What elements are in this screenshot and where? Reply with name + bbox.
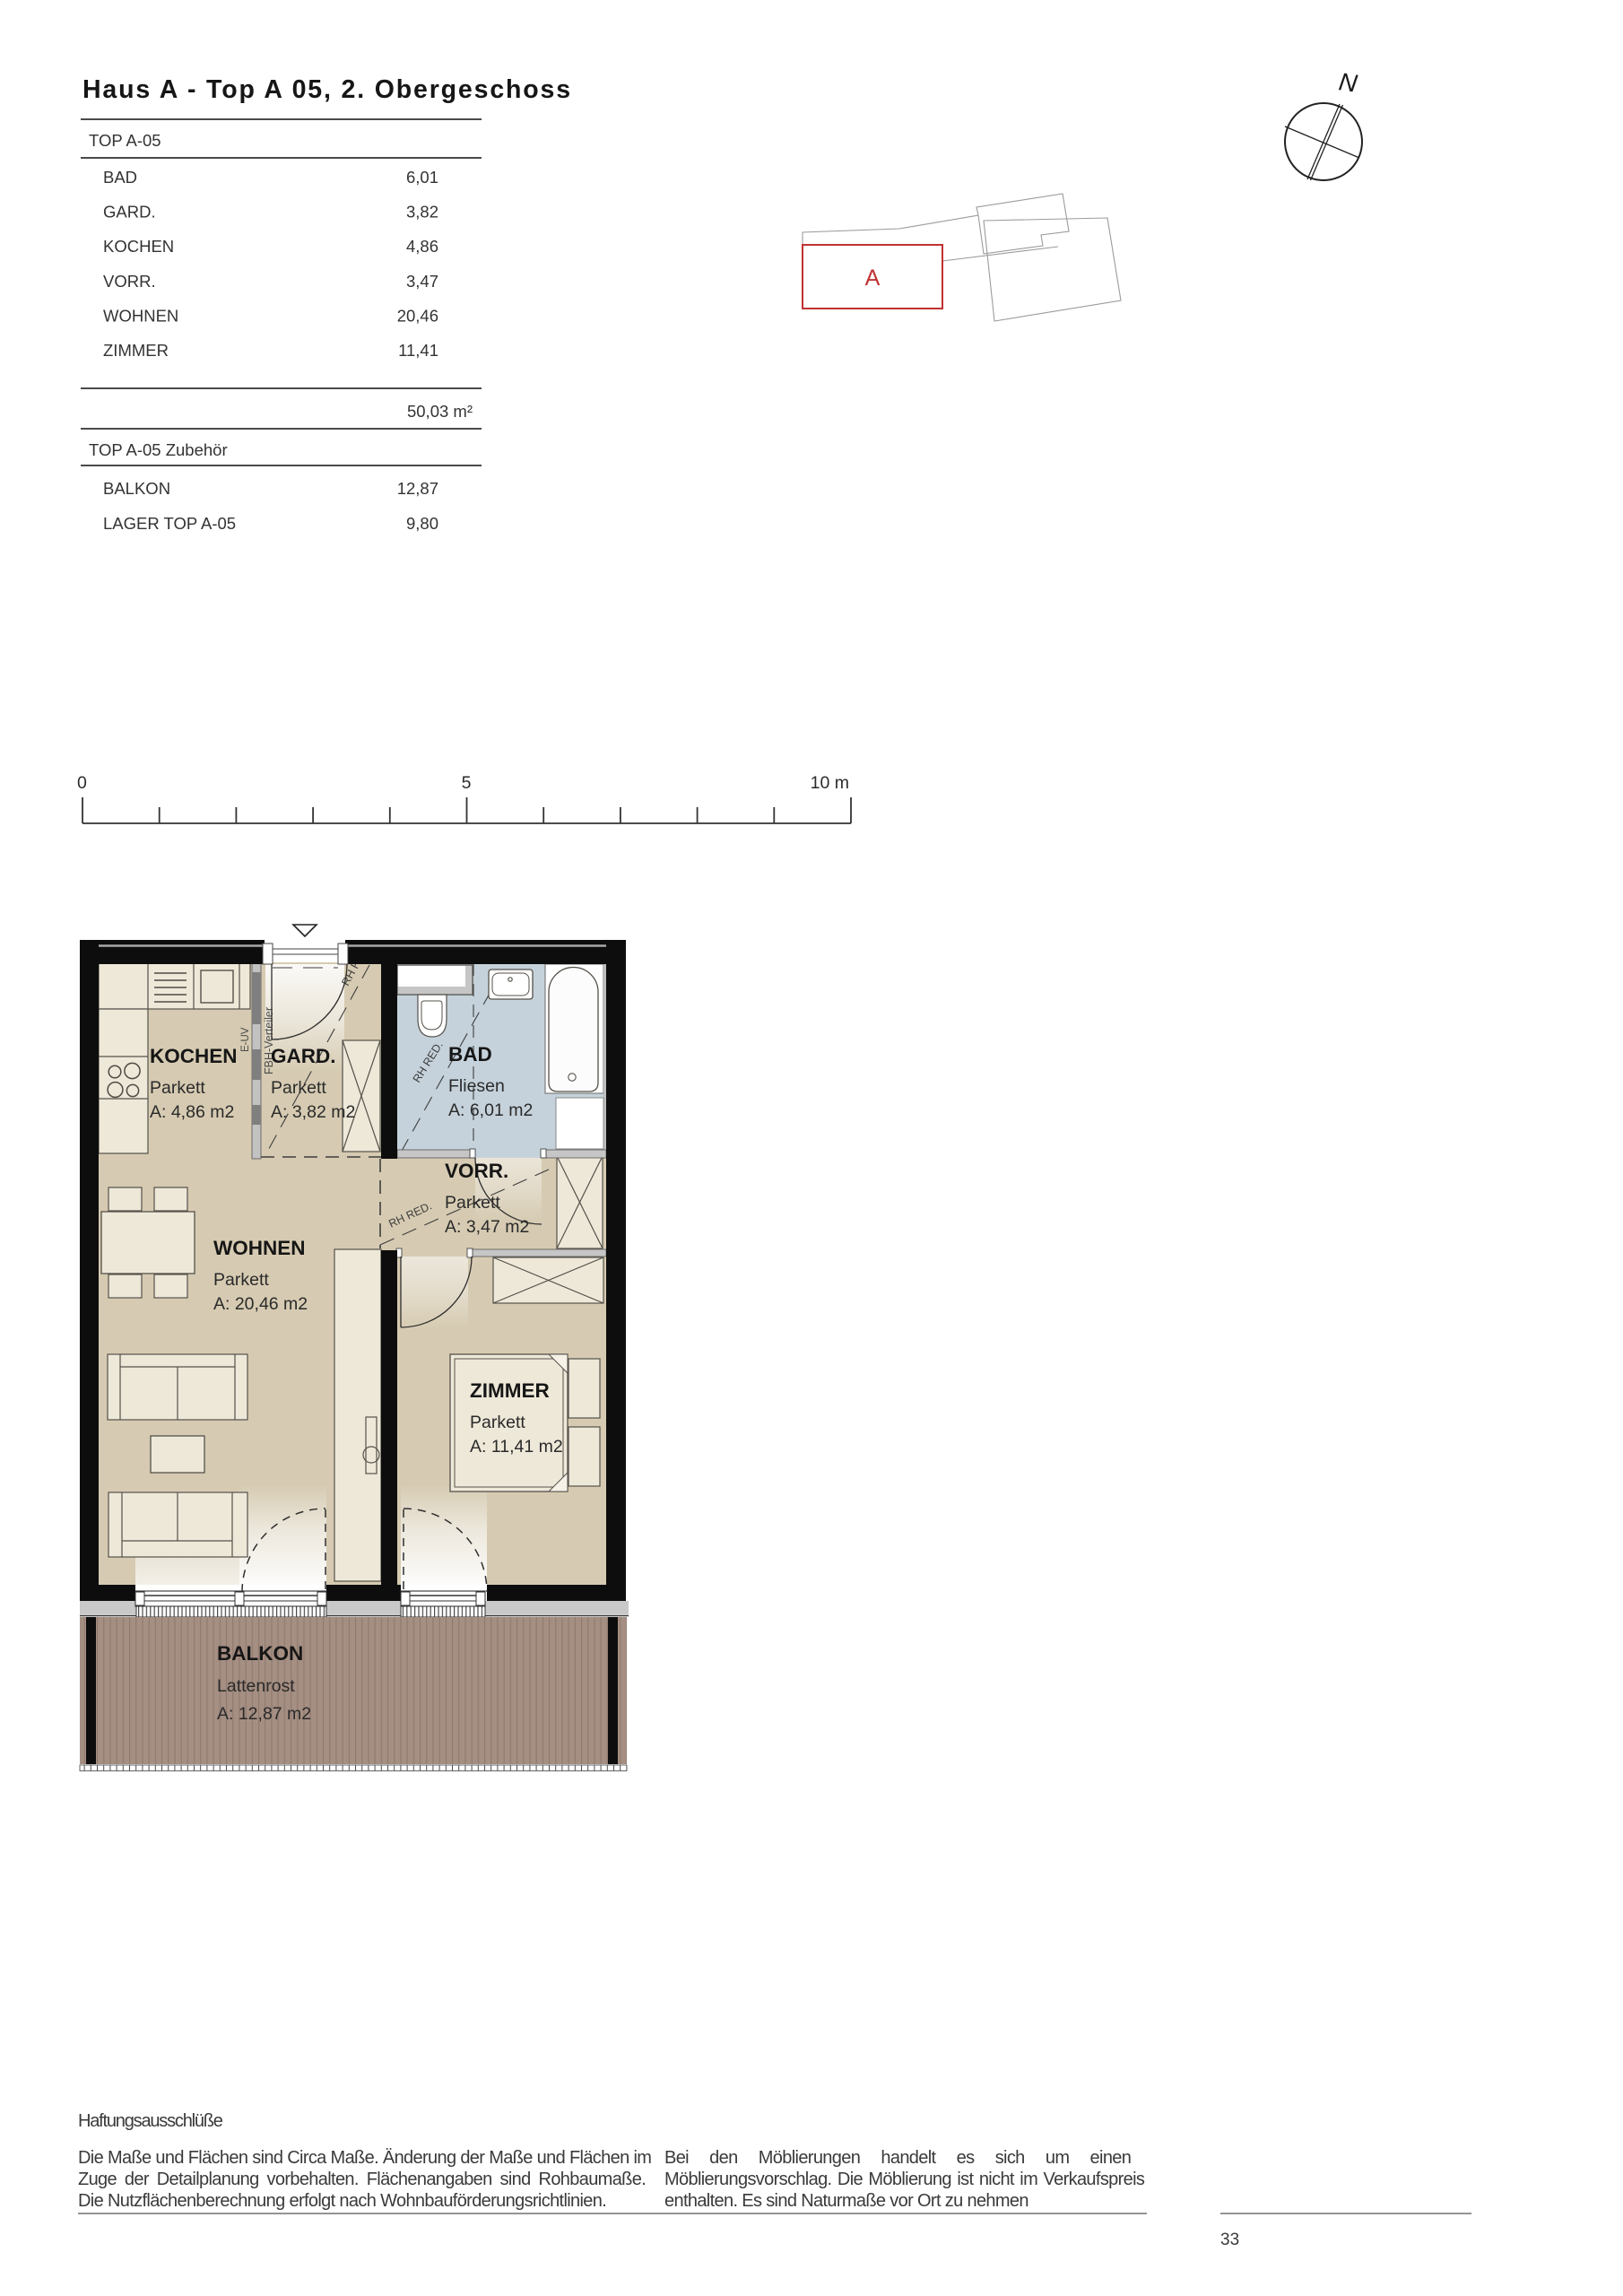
svg-text:A: 6,01 m2: A: 6,01 m2 (448, 1100, 533, 1120)
svg-text:LAGER TOP A-05: LAGER TOP A-05 (103, 514, 236, 533)
svg-text:12,87: 12,87 (397, 479, 438, 498)
svg-text:Parkett: Parkett (150, 1078, 205, 1098)
svg-text:KOCHEN: KOCHEN (103, 237, 174, 256)
svg-text:BALKON: BALKON (103, 479, 170, 498)
svg-text:BAD: BAD (448, 1043, 492, 1065)
svg-text:WOHNEN: WOHNEN (103, 306, 178, 325)
svg-text:0: 0 (77, 773, 87, 793)
svg-text:ZIMMER: ZIMMER (103, 341, 169, 360)
svg-text:Parkett: Parkett (271, 1078, 326, 1098)
svg-text:Haus A - Top A 05, 2. Obergesc: Haus A - Top A 05, 2. Obergeschoss (82, 75, 572, 104)
svg-text:3,47: 3,47 (406, 272, 438, 291)
svg-text:TOP A-05: TOP A-05 (89, 131, 161, 150)
svg-text:VORR.: VORR. (445, 1160, 508, 1182)
svg-text:GARD.: GARD. (271, 1045, 336, 1067)
svg-text:3,82: 3,82 (406, 203, 438, 222)
svg-text:5: 5 (462, 773, 472, 793)
svg-text:A: 12,87 m2: A: 12,87 m2 (217, 1704, 311, 1724)
svg-text:A: 3,47 m2: A: 3,47 m2 (445, 1217, 529, 1237)
svg-text:Parkett: Parkett (445, 1193, 500, 1213)
svg-text:A: 3,82 m2: A: 3,82 m2 (271, 1102, 355, 1122)
svg-text:KOCHEN: KOCHEN (150, 1045, 238, 1067)
svg-text:GARD.: GARD. (103, 203, 156, 222)
svg-text:4,86: 4,86 (406, 237, 438, 256)
svg-text:Parkett: Parkett (470, 1413, 525, 1432)
svg-text:A: A (865, 265, 881, 291)
svg-text:6,01: 6,01 (406, 168, 438, 187)
svg-text:enthalten. Es sind Naturmaße v: enthalten. Es sind Naturmaße vor Ort zu … (664, 2191, 1028, 2211)
svg-text:WOHNEN: WOHNEN (213, 1237, 306, 1259)
svg-text:E-UV: E-UV (240, 1027, 251, 1052)
svg-text:Lattenrost: Lattenrost (217, 1676, 295, 1696)
svg-text:Die Maße und Flächen sind Circ: Die Maße und Flächen sind Circa Maße. Än… (78, 2148, 651, 2168)
svg-text:Die Nutzflächenberechnung erfo: Die Nutzflächenberechnung erfolgt nach W… (78, 2191, 606, 2211)
svg-text:ZIMMER: ZIMMER (470, 1379, 550, 1402)
svg-text:20,46: 20,46 (397, 306, 438, 325)
svg-text:A: 20,46 m2: A: 20,46 m2 (213, 1294, 308, 1314)
svg-text:Möblierungsvorschlag. Die Möbl: Möblierungsvorschlag. Die Möblierung ist… (664, 2170, 1145, 2189)
svg-text:A: 11,41 m2: A: 11,41 m2 (470, 1437, 563, 1457)
svg-text:TOP A-05 Zubehör: TOP A-05 Zubehör (89, 440, 228, 459)
svg-text:50,03 m²: 50,03 m² (407, 402, 473, 421)
svg-text:11,41: 11,41 (398, 341, 438, 360)
svg-text:Zuge der Detailplanung vorbeha: Zuge der Detailplanung vorbehalten. Fläc… (78, 2170, 646, 2189)
svg-text:10 m: 10 m (811, 773, 849, 793)
svg-text:Bei den Möblierungen handelt e: Bei den Möblierungen handelt es sich um … (664, 2148, 1131, 2168)
svg-text:Haftungsausschlüße: Haftungsausschlüße (78, 2111, 223, 2131)
svg-text:BAD: BAD (103, 168, 137, 187)
svg-text:VORR.: VORR. (103, 272, 156, 291)
svg-text:33: 33 (1220, 2231, 1239, 2249)
svg-text:9,80: 9,80 (406, 514, 438, 533)
svg-text:A: 4,86 m2: A: 4,86 m2 (150, 1102, 234, 1122)
svg-text:Parkett: Parkett (213, 1270, 269, 1290)
svg-text:Fliesen: Fliesen (448, 1076, 505, 1096)
svg-text:BALKON: BALKON (217, 1642, 303, 1665)
